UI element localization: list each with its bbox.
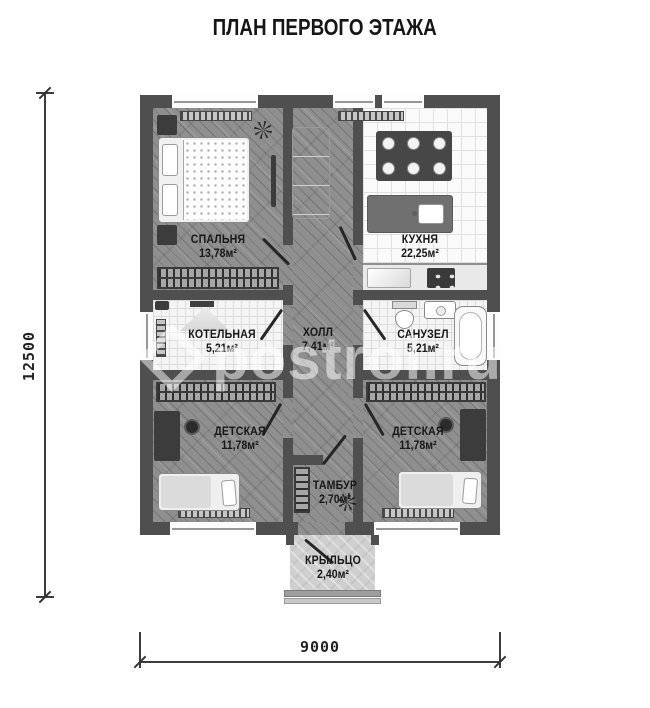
page-title-text: ПЛАН ПЕРВОГО ЭТАЖА (213, 14, 437, 41)
porch-step (284, 590, 381, 597)
sofa-icon (292, 127, 330, 219)
plate-icon (433, 162, 446, 175)
plate-icon (382, 162, 395, 175)
window-bathroom-right (487, 312, 500, 360)
desk-icon (154, 411, 180, 461)
island-sink-icon (418, 204, 444, 224)
plate-icon (407, 162, 420, 175)
plate-icon (433, 137, 446, 150)
room-label-nursery-right: ДЕТСКАЯ 11,78м² (358, 424, 478, 452)
room-label-porch: КРЫЛЬЦО 2,40м² (273, 553, 393, 581)
door-opening-porch (298, 522, 345, 535)
plate-icon (407, 137, 420, 150)
room-label-hall: ХОЛЛ 7,41м² (258, 325, 378, 353)
plant-icon (254, 121, 272, 139)
building-outline (140, 95, 500, 535)
dimension-vertical-value: 12500 (20, 321, 38, 391)
floor-plan-page: ПЛАН ПЕРВОГО ЭТАЖА (0, 0, 650, 708)
dimension-horizontal-value: 9000 (140, 638, 500, 656)
porch-step (284, 598, 381, 604)
dimension-line (140, 661, 500, 663)
kitchen-counter-icon (363, 263, 487, 290)
tv-panel-icon (271, 155, 276, 207)
room-label-nursery-left: ДЕТСКАЯ 11,78м² (180, 424, 300, 452)
faucet-icon (412, 211, 417, 216)
room-label-bedroom: СПАЛЬНЯ 13,78м² (158, 232, 278, 260)
pillow-icon (162, 144, 178, 176)
window-kitchen-top-1 (333, 95, 375, 108)
wardrobe-hangers-icon (156, 382, 276, 402)
single-bed-icon (398, 471, 482, 509)
window-kitchen-top-2 (382, 95, 424, 108)
washbasin-icon (424, 301, 456, 319)
window-boiler-left (140, 312, 153, 360)
window-nursery-left-bottom (170, 522, 256, 535)
wardrobe-hangers-icon (157, 267, 279, 289)
radiator-icon (180, 111, 252, 121)
vestibule-wall-stub (293, 455, 323, 465)
blanket-icon (161, 476, 211, 508)
boiler-unit-icon (155, 301, 169, 310)
washbasin-bowl-icon (436, 306, 446, 316)
porch-wall-return (286, 535, 294, 545)
room-label-kitchen: КУХНЯ 22,25м² (360, 232, 480, 260)
single-bed-icon (158, 473, 240, 511)
plate-icon (382, 137, 395, 150)
stove-icon (427, 268, 455, 288)
room-label-vestibule: ТАМБУР 2,70м² (275, 478, 395, 506)
page-title: ПЛАН ПЕРВОГО ЭТАЖА (0, 14, 650, 41)
room-label-bathroom: САНУЗЕЛ 5,21м² (363, 327, 483, 355)
dimension-line (44, 93, 46, 598)
pillow-icon (462, 477, 478, 504)
duvet-icon (183, 140, 247, 220)
window-nursery-right-bottom (374, 522, 460, 535)
counter-sink-icon (367, 268, 411, 288)
blanket-icon (401, 474, 453, 506)
radiator-icon (382, 508, 454, 518)
pillow-icon (221, 479, 237, 506)
dining-table-icon (376, 131, 452, 181)
pillow-icon (162, 184, 178, 216)
wardrobe-hangers-icon (366, 382, 486, 402)
window-bedroom-top (172, 95, 258, 108)
kitchen-island-icon (367, 195, 453, 233)
nightstand-icon (157, 115, 177, 135)
porch-wall-return (371, 535, 379, 545)
toilet-tank-icon (392, 301, 417, 309)
boiler-hood-top-icon (190, 301, 214, 307)
radiator-icon (338, 111, 404, 121)
double-bed-icon (158, 137, 250, 223)
